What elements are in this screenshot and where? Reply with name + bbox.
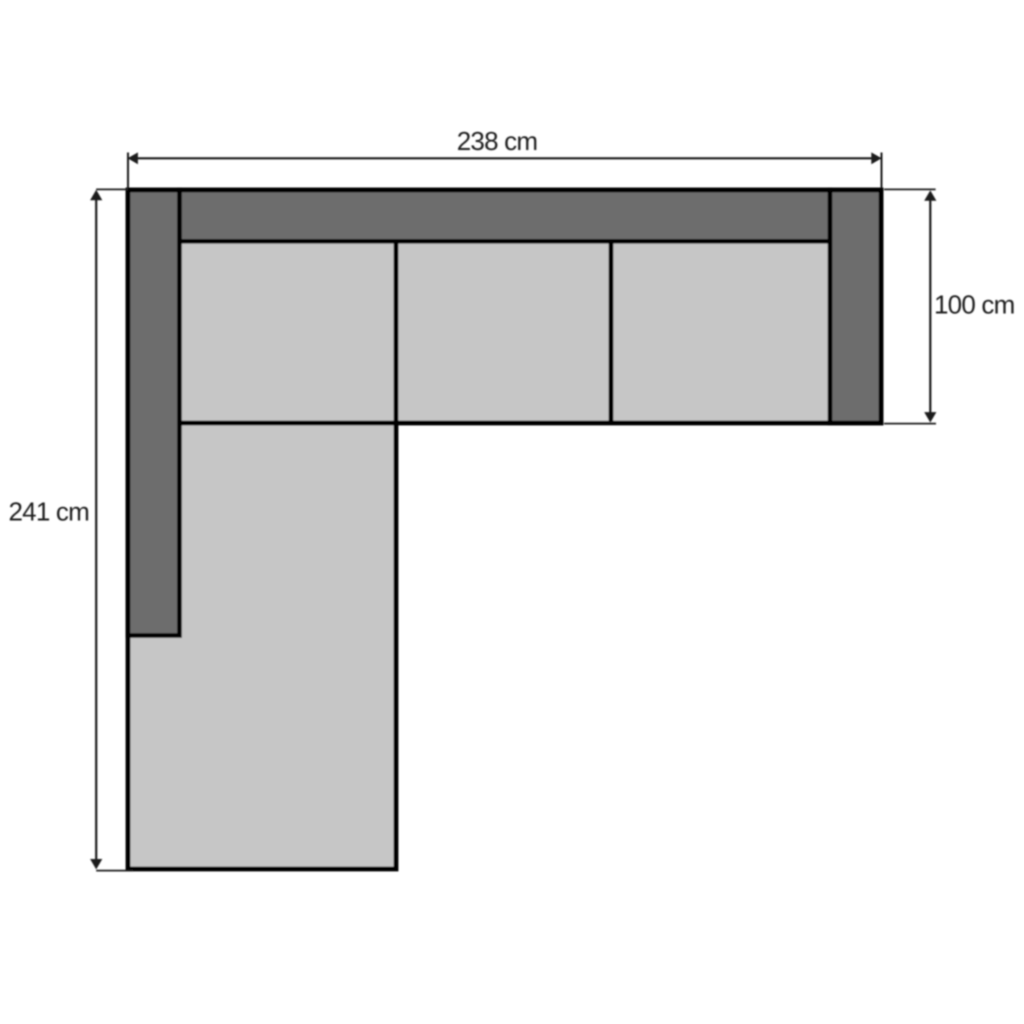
svg-text:238 cm: 238 cm	[457, 126, 537, 156]
svg-text:241 cm: 241 cm	[9, 497, 89, 527]
svg-text:100 cm: 100 cm	[934, 290, 1014, 320]
